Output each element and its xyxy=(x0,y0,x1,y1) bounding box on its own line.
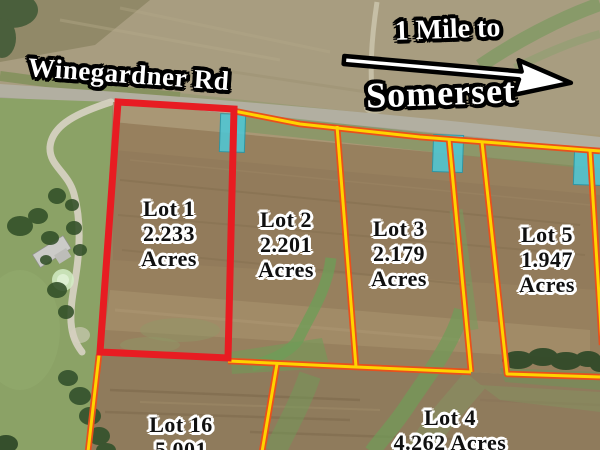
lot-3-label: Lot 3 2.179 Acres xyxy=(334,216,464,291)
lot-name: Lot 1 xyxy=(104,196,234,221)
lot-1-label: Lot 1 2.233 Acres xyxy=(104,196,234,271)
lot-acreage: 4.262 Acres xyxy=(370,430,530,450)
lot-name: Lot 4 xyxy=(370,405,530,430)
lot-name: Lot 16 xyxy=(116,412,246,437)
lot-name: Lot 3 xyxy=(334,216,464,241)
lot-acreage-unit: Acres xyxy=(334,266,464,291)
direction-distance-label: 1 Mile to xyxy=(374,11,520,48)
lot-name: Lot 2 xyxy=(221,207,351,232)
lot-acreage: 5.001 xyxy=(116,437,246,450)
lot-4-label: Lot 4 4.262 Acres xyxy=(370,405,530,450)
lot-5-label: Lot 5 1.947 Acres xyxy=(482,222,600,297)
lot-name: Lot 5 xyxy=(482,222,600,247)
direction-town-label: Somerset xyxy=(360,69,521,117)
lot-acreage-unit: Acres xyxy=(104,246,234,271)
lot-acreage: 2.201 xyxy=(221,232,351,257)
lot-acreage: 2.179 xyxy=(334,241,464,266)
aerial-lot-map: Winegardner Rd 1 Mile to Somerset Lot 1 … xyxy=(0,0,600,450)
lot-acreage-unit: Acres xyxy=(482,272,600,297)
lot-acreage: 2.233 xyxy=(104,221,234,246)
lot-acreage: 1.947 xyxy=(482,247,600,272)
lot-2-label: Lot 2 2.201 Acres xyxy=(221,207,351,282)
lot-acreage-unit: Acres xyxy=(221,257,351,282)
lot-16-label: Lot 16 5.001 xyxy=(116,412,246,450)
